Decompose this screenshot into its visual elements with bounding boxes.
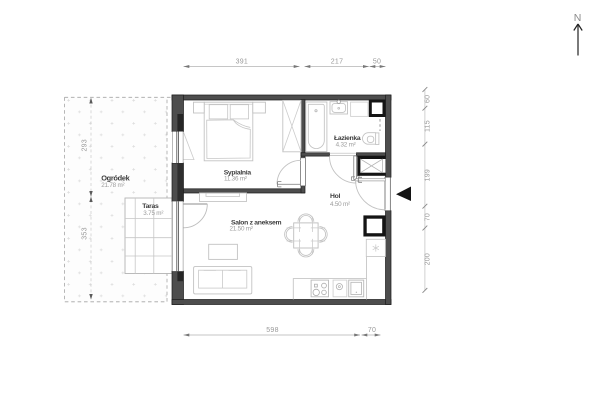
svg-text:70: 70 [368,327,376,334]
svg-text:Hol: Hol [330,193,340,200]
svg-text:4.50 m²: 4.50 m² [330,201,350,208]
svg-text:391: 391 [236,59,248,66]
svg-text:21.50 m²: 21.50 m² [230,225,253,232]
svg-text:200: 200 [425,253,432,265]
svg-text:11.36 m²: 11.36 m² [224,176,247,183]
svg-text:199: 199 [425,169,432,181]
svg-text:3.75 m²: 3.75 m² [143,210,163,217]
svg-text:4.32 m²: 4.32 m² [336,141,356,148]
svg-text:598: 598 [266,327,278,334]
svg-text:115: 115 [425,120,432,132]
svg-text:353: 353 [82,227,89,239]
svg-text:217: 217 [331,59,343,66]
svg-text:70: 70 [425,213,432,221]
svg-text:50: 50 [373,59,381,66]
svg-text:293: 293 [82,139,89,151]
svg-text:60: 60 [425,95,432,103]
svg-text:N: N [574,12,582,24]
svg-text:21.78 m²: 21.78 m² [101,182,124,189]
